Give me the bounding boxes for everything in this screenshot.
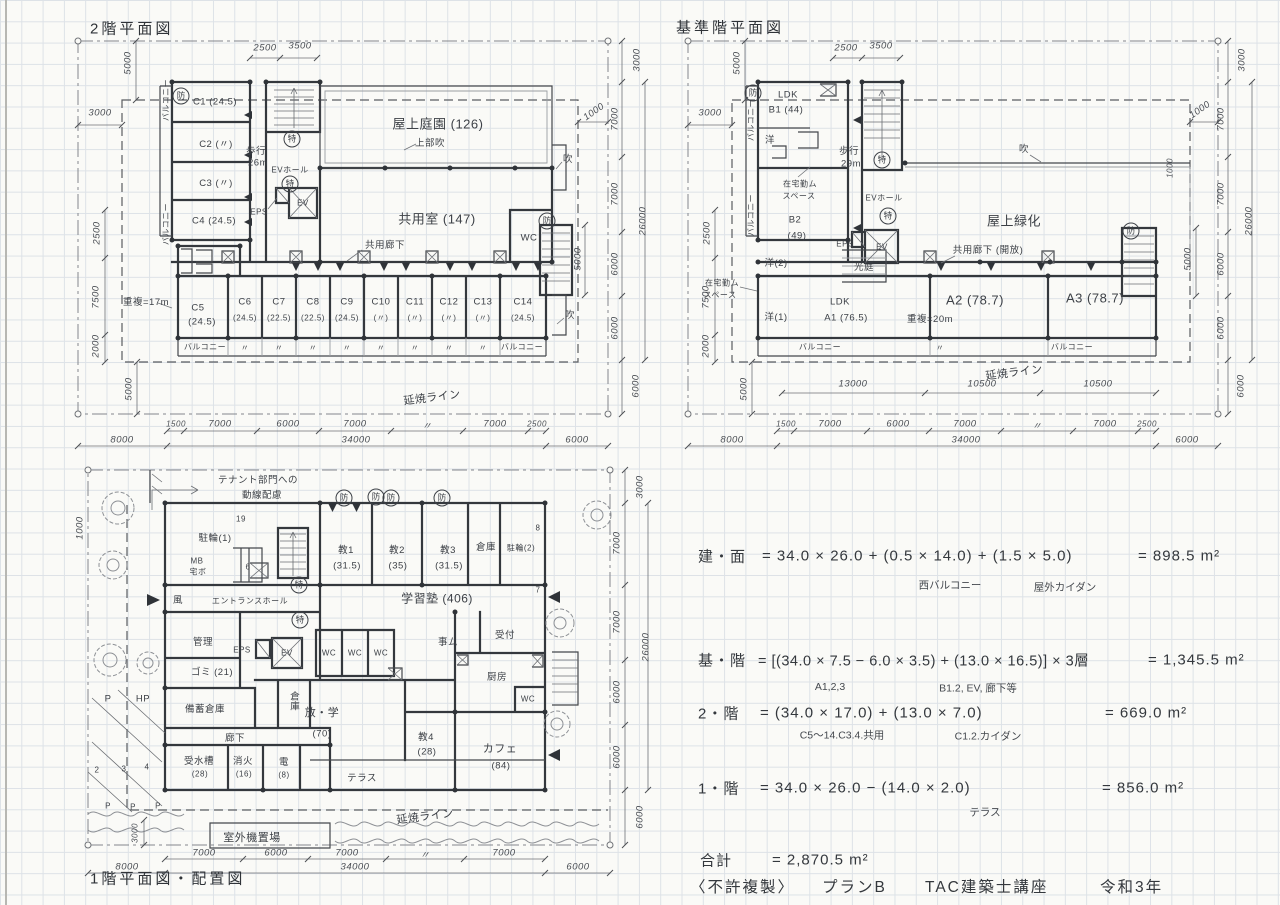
dim: 7000 (1093, 419, 1116, 430)
room-label: C12 (440, 297, 459, 308)
dim: 2500 (92, 221, 103, 244)
hedges (88, 812, 599, 843)
room-label: 教1 (338, 542, 354, 556)
void-label: 吹 (565, 307, 575, 321)
dim: 7000 (610, 182, 621, 205)
dim: 6000 (565, 435, 588, 446)
room-area: (24.5) (188, 317, 216, 328)
count-label: 8 (536, 524, 541, 533)
calc-note: 屋外カイダン (1034, 580, 1097, 595)
balcony-label: バルコニー (161, 79, 172, 121)
ev-label: EV (297, 199, 309, 208)
calc-note: C5〜14.C3.4.共用 (800, 728, 885, 743)
dim: 5000 (124, 377, 135, 400)
room-area: (28) (192, 770, 208, 779)
dim: 〃 (1032, 418, 1042, 432)
dim: 6000 (612, 745, 623, 768)
room-area: (16) (236, 770, 252, 779)
calc-note: A1,2,3 (815, 681, 845, 693)
dim: 8000 (115, 862, 138, 873)
fire-spread-dashed-lines (122, 100, 1190, 810)
balcony-label: バルコニー (184, 342, 226, 353)
dim: 26000 (638, 207, 649, 236)
dim: 8000 (110, 435, 133, 446)
walk-distance-label: 歩行 (246, 143, 266, 157)
dim: 26000 (641, 633, 652, 662)
walk-distance-label: 歩行 (839, 143, 859, 157)
telework-space-label: スペース (782, 191, 815, 202)
course-name: TAC建築士講座 (925, 875, 1048, 897)
ev-label: EV (281, 649, 293, 658)
no-copy-stamp: 〈不許複製〉 (690, 875, 795, 897)
calc-note: 西バルコニー (919, 578, 982, 593)
kitchen-label: 厨房 (487, 669, 507, 683)
dim: 7000 (612, 610, 623, 633)
room-label: 洋(2) (764, 255, 787, 269)
dim: 8000 (720, 435, 743, 446)
dim: 1500 (776, 420, 796, 429)
afterschool-room-label: 放・学 (305, 704, 340, 720)
calc-result: = 898.5 m² (1138, 548, 1220, 565)
room-label: C2 (〃) (199, 136, 233, 150)
dim: 7000 (1216, 182, 1227, 205)
calc-formula: = [(34.0 × 7.5 − 6.0 × 3.5) + (13.0 × 16… (758, 650, 1089, 671)
room-label: 洋(1) (764, 309, 787, 323)
dim: 6000 (276, 419, 299, 430)
storage-label: 倉庫 (286, 691, 300, 711)
plan-variant-label: プランB (822, 875, 887, 897)
fire-door-mark: 特 (291, 577, 308, 594)
hp-parking-label: HP (136, 694, 150, 705)
calc-total-value: = 2,870.5 m² (772, 852, 869, 869)
dim: 〃 (420, 847, 430, 861)
storage-label: 倉庫 (476, 539, 496, 553)
dim: 7000 (483, 419, 506, 430)
dim: 7000 (192, 848, 215, 859)
outdoor-unit-area-label: 室外機置場 (223, 829, 281, 845)
overlap-distance-label: 重複=17m (123, 294, 169, 308)
room-label: A2 (78.7) (946, 293, 1004, 308)
void-label: 吹 (1019, 141, 1029, 155)
dim: 5000 (739, 377, 750, 400)
walk-distance-value: 29m (841, 159, 861, 170)
count-label: 4 (145, 763, 150, 772)
dim: 3000 (632, 48, 643, 71)
fire-door-mark: 特 (880, 208, 897, 225)
electrical-room-label: 電 (279, 754, 289, 768)
fire-door-mark: 特 (292, 612, 309, 629)
roof-greening-label: 屋上緑化 (987, 211, 1041, 230)
light-court-label: 光庭 (854, 259, 874, 273)
parking-stall-label: P (130, 803, 136, 812)
dim: 34000 (342, 435, 371, 446)
room-label: B1 (44) (769, 105, 804, 116)
room-area: (24.5) (511, 314, 535, 323)
room-label: C1 (24.5) (193, 97, 237, 108)
room-area: (8) (278, 771, 289, 780)
calc-result: = 669.0 m² (1105, 705, 1187, 722)
bicycle-parking-label: 駐輪(1) (198, 530, 231, 544)
dim: 7000 (1216, 107, 1227, 130)
room-area: (〃) (476, 313, 491, 324)
mailbox-label: MB (191, 557, 204, 566)
room-label: C10 (372, 297, 391, 308)
dim: 7000 (208, 419, 231, 430)
ev-hall-label: EVホール (865, 193, 902, 204)
cram-school-label: 学習塾 (406) (401, 590, 473, 607)
overlap-distance-label: 重複=20m (907, 311, 953, 325)
dim: 34000 (952, 435, 981, 446)
dim: 5000 (123, 51, 134, 74)
calc-label-2f: 2・階 (698, 703, 739, 724)
dim: 7000 (343, 419, 366, 430)
room-label: C5 (191, 303, 204, 314)
fire-shutter-mark: 防 (173, 88, 190, 105)
room-area: (31.5) (435, 561, 463, 572)
dim: 7000 (492, 848, 515, 859)
garbage-room-label: ゴミ (21) (191, 664, 233, 678)
fire-shutter-mark: 防 (1123, 223, 1140, 240)
room-area: (49) (788, 231, 807, 242)
void-label: 吹 (563, 151, 573, 165)
dim: 7000 (612, 531, 623, 554)
tenant-flow-note: テナント部門への (218, 472, 298, 486)
room-label: B2 (789, 215, 802, 226)
dim: 7000 (953, 419, 976, 430)
delivery-box-label: 宅ボ (190, 567, 207, 578)
corridor-label: 共用廊下 (開放) (953, 242, 1023, 256)
dim: 5000 (1183, 247, 1194, 270)
calc-label-total: 合計 (700, 850, 732, 871)
dim: 3500 (288, 41, 311, 52)
wc-label: WC (348, 649, 362, 658)
dim: 7000 (335, 848, 358, 859)
ditto-mark: 〃 (479, 343, 488, 354)
eps-label: EPS (836, 240, 854, 249)
parking-stall-label: P (105, 694, 112, 705)
dim: 10500 (1084, 379, 1113, 390)
entrance-hall-label: エントランスホール (212, 596, 288, 607)
dim: 7500 (91, 285, 102, 308)
dim: 〃 (422, 418, 432, 432)
stockpile-storage-label: 備蓄倉庫 (185, 701, 225, 715)
room-label: C3 (〃) (199, 175, 233, 189)
roof-garden-label: 屋上庭園 (126) (393, 114, 484, 133)
calc-formula: = (34.0 × 17.0) + (13.0 × 7.0) (760, 705, 983, 722)
dim: 6000 (1216, 316, 1227, 339)
wc-label: WC (322, 649, 336, 658)
dim: 5000 (732, 51, 743, 74)
eps-label: EPS (250, 208, 268, 217)
fire-door-mark: 特 (874, 152, 891, 169)
dim: 10500 (968, 379, 997, 390)
telework-space-label: 在宅勤ム (783, 179, 817, 190)
balcony-label: バルコニー (501, 342, 543, 353)
ditto-mark: 〃 (411, 343, 420, 354)
corridor-label: 共用廊下 (365, 237, 405, 251)
balcony-label: バルコニー (1051, 342, 1093, 353)
room-label: LDK (778, 90, 798, 101)
count-label: 6 (246, 563, 251, 572)
count-label: 2 (95, 766, 100, 775)
wc-label: WC (521, 233, 538, 244)
dim: 3000 (131, 823, 140, 843)
common-room-label: 共用室 (147) (398, 209, 475, 228)
balcony-label: バルコニー (746, 99, 757, 141)
office-label: 事ム (438, 634, 458, 648)
dim: 5000 (573, 247, 584, 270)
calc-note: テラス (969, 805, 1000, 820)
fire-shutter-mark: 防 (336, 490, 353, 507)
fire-door-mark: 特 (282, 176, 299, 193)
plan-std-title: 基準階平面図 (676, 17, 784, 38)
room-area: (70) (313, 729, 332, 740)
dim: 7000 (818, 419, 841, 430)
dim: 6000 (1216, 252, 1227, 275)
dim: 6000 (631, 374, 642, 397)
room-area: (22.5) (267, 314, 291, 323)
room-label: C9 (340, 297, 353, 308)
eps-label: EPS (233, 646, 251, 655)
wc-label: WC (374, 649, 388, 658)
room-label: 教4 (418, 729, 434, 743)
calc-note: C1.2.カイダン (955, 729, 1022, 744)
fire-shutter-mark: 防 (539, 213, 556, 230)
upper-void-label: 上部吹 (415, 135, 445, 149)
room-area: (35) (389, 561, 408, 572)
fire-shutter-mark: 防 (383, 490, 400, 507)
calc-formula: = 34.0 × 26.0 − (14.0 × 2.0) (760, 780, 971, 797)
room-label: LDK (830, 297, 850, 308)
dim: 2500 (527, 420, 547, 429)
room-label: C6 (238, 297, 251, 308)
room-area: (22.5) (301, 314, 325, 323)
calc-note: B1.2, EV, 廊下等 (939, 681, 1017, 696)
dim: 6000 (886, 419, 909, 430)
calc-label-1f: 1・階 (698, 778, 739, 799)
dim: 7500 (701, 285, 712, 308)
dim: 2500 (253, 43, 276, 54)
fire-shutter-mark: 防 (434, 490, 451, 507)
ditto-mark: 〃 (445, 343, 454, 354)
room-area: (28) (418, 747, 437, 758)
tenant-flow-note: 動線配慮 (242, 487, 282, 501)
dim: 26000 (1244, 207, 1255, 236)
walk-distance-value: 26m (248, 158, 268, 169)
dim: 1000 (1166, 158, 1175, 178)
ditto-mark: 〃 (343, 343, 352, 354)
room-label: C8 (306, 297, 319, 308)
room-area: (84) (492, 761, 511, 772)
room-label: 教2 (389, 542, 405, 556)
parking-stall-label: P (155, 802, 161, 811)
dim: 1500 (166, 420, 186, 429)
room-area: (〃) (408, 313, 423, 324)
dim: 7000 (610, 107, 621, 130)
fire-door-mark: 特 (284, 131, 301, 148)
dim: 6000 (264, 848, 287, 859)
dim: 3000 (698, 108, 721, 119)
dim: 3000 (88, 108, 111, 119)
water-tank-label: 受水槽 (184, 753, 214, 767)
dim: 3000 (635, 475, 646, 498)
dim: 6000 (566, 862, 589, 873)
count-label: 19 (236, 515, 246, 524)
dim: 2500 (1137, 420, 1157, 429)
balcony-label: バルコニー (799, 342, 841, 353)
room-label: C13 (474, 297, 493, 308)
dim: 34000 (341, 862, 370, 873)
room-label: A3 (78.7) (1066, 291, 1124, 306)
dim: 6000 (610, 252, 621, 275)
dim: 3500 (869, 41, 892, 52)
balcony-label: バルコニー (746, 194, 757, 236)
dim: 6000 (612, 680, 623, 703)
room-label: C11 (406, 297, 424, 308)
ditto-mark: 〃 (241, 343, 250, 354)
ditto-mark: 〃 (275, 343, 284, 354)
room-label: 洋 (765, 132, 775, 146)
windbreak-label: 風 (173, 592, 183, 606)
ditto-mark: 〃 (377, 343, 386, 354)
room-area: (〃) (442, 313, 457, 324)
admin-room-label: 管理 (193, 634, 213, 648)
calc-label-standard-floor: 基・階 (698, 650, 746, 671)
room-area: (24.5) (335, 314, 359, 323)
room-area: (〃) (374, 313, 389, 324)
dim: 1000 (75, 516, 86, 539)
terrace-label: テラス (347, 770, 377, 784)
cafe-label: カフェ (483, 740, 518, 756)
calc-result: = 1,345.5 m² (1148, 652, 1245, 669)
balcony-label: バルコニー (161, 203, 172, 245)
dim: 6000 (610, 316, 621, 339)
room-area: (24.5) (233, 314, 257, 323)
room-label: A1 (76.5) (824, 313, 868, 324)
reception-label: 受付 (495, 627, 515, 641)
room-label: C14 (514, 297, 533, 308)
calc-formula: = 34.0 × 26.0 + (0.5 × 14.0) + (1.5 × 5.… (762, 548, 1073, 565)
ditto-mark: 〃 (309, 343, 318, 354)
dim: 6000 (1175, 435, 1198, 446)
dim: 6000 (635, 805, 646, 828)
count-label: 7 (536, 586, 541, 595)
room-area: (31.5) (333, 561, 361, 572)
plan-2f-title: 2階平面図 (90, 18, 173, 39)
dim: 2000 (91, 334, 102, 357)
ev-hall-label: EVホール (271, 165, 308, 176)
ditto-mark: 〃 (936, 343, 945, 354)
calc-result: = 856.0 m² (1102, 780, 1184, 797)
wc-label: WC (521, 695, 535, 704)
dim: 2500 (702, 221, 713, 244)
room-label: C4 (24.5) (192, 216, 236, 227)
dim: 2500 (834, 43, 857, 54)
room-label: 教3 (440, 542, 456, 556)
parking-stall-label: P (105, 802, 111, 811)
fire-pump-label: 消火 (233, 753, 253, 767)
bicycle-parking-label: 駐輪(2) (507, 543, 535, 554)
dim: 3000 (1237, 48, 1248, 71)
count-label: 3 (122, 765, 127, 774)
dim: 13000 (839, 379, 868, 390)
plan-1f-title: 1階平面図・配置図 (90, 868, 245, 889)
dim: 6000 (1236, 374, 1247, 397)
corridor-label: 廊下 (225, 730, 245, 744)
room-label: C7 (272, 297, 285, 308)
dim: 2000 (701, 334, 712, 357)
year-label: 令和3年 (1100, 875, 1163, 897)
ev-label: EV (876, 243, 888, 252)
calc-label-building-area: 建・面 (698, 546, 746, 567)
hand-drawn-floor-plan-sheet: 2階平面図 防 C1 (24.5) C2 (〃) C3 (〃) C4 (24.5… (0, 0, 1280, 905)
